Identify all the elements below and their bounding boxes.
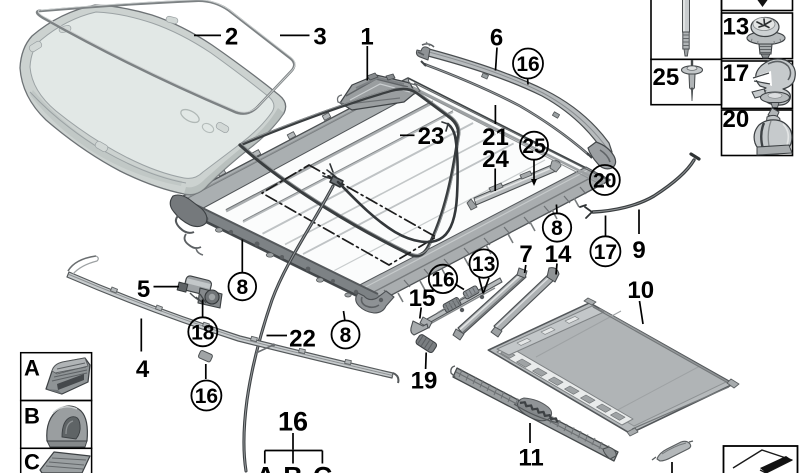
svg-text:8: 8 <box>551 217 563 240</box>
svg-text:23: 23 <box>418 123 445 150</box>
svg-text:20: 20 <box>593 170 616 193</box>
svg-text:A: A <box>24 356 40 381</box>
svg-text:B: B <box>283 462 303 473</box>
svg-text:19: 19 <box>411 368 438 395</box>
svg-text:10: 10 <box>627 277 654 304</box>
svg-text:16: 16 <box>431 268 454 291</box>
svg-text:7: 7 <box>519 241 532 268</box>
svg-text:16: 16 <box>195 385 218 408</box>
svg-text:17: 17 <box>723 60 750 87</box>
svg-text:1: 1 <box>360 24 373 51</box>
svg-text:4: 4 <box>136 356 150 383</box>
svg-text:6: 6 <box>490 25 503 52</box>
svg-text:3: 3 <box>313 24 326 51</box>
svg-text:9: 9 <box>632 237 645 264</box>
svg-text:2: 2 <box>225 24 238 51</box>
svg-text:C: C <box>313 462 333 473</box>
svg-text:25: 25 <box>653 64 680 91</box>
svg-text:11: 11 <box>518 445 543 472</box>
svg-text:20: 20 <box>723 106 750 133</box>
svg-text:8: 8 <box>236 276 248 299</box>
svg-text:13: 13 <box>723 14 750 41</box>
svg-text:8: 8 <box>340 324 352 347</box>
svg-text:B: B <box>24 403 40 428</box>
svg-text:24: 24 <box>482 146 509 173</box>
svg-text:16: 16 <box>278 407 308 437</box>
svg-text:25: 25 <box>522 135 546 158</box>
svg-text:18: 18 <box>191 321 215 344</box>
svg-text:A: A <box>256 462 276 473</box>
svg-text:17: 17 <box>594 241 617 264</box>
svg-text:22: 22 <box>289 326 316 353</box>
svg-text:16: 16 <box>516 53 539 76</box>
svg-text:13: 13 <box>472 253 495 276</box>
svg-text:5: 5 <box>137 276 150 303</box>
svg-text:14: 14 <box>545 241 572 268</box>
svg-text:C: C <box>24 450 40 473</box>
